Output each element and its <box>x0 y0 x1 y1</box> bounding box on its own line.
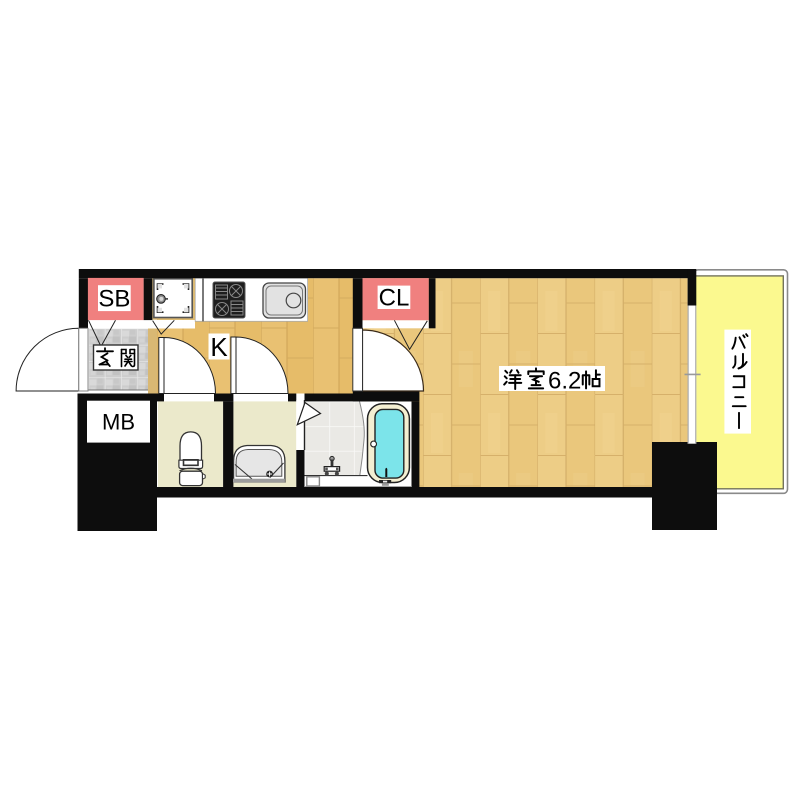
svg-text:MB: MB <box>102 410 135 435</box>
svg-text:CL: CL <box>379 284 410 311</box>
svg-text:K: K <box>210 332 228 362</box>
svg-text:6.2: 6.2 <box>548 368 581 395</box>
svg-text:SB: SB <box>98 285 130 312</box>
